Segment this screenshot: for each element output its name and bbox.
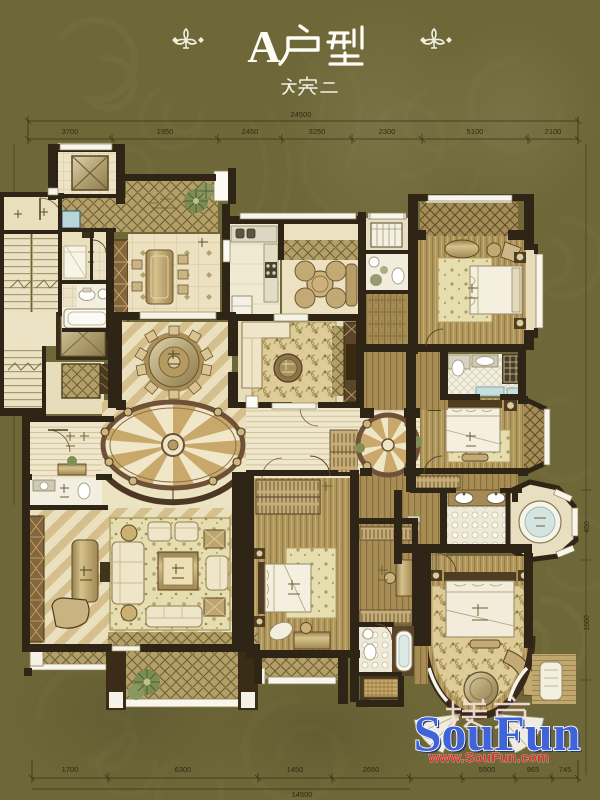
svg-text:965: 965	[527, 765, 540, 774]
svg-text:3250: 3250	[309, 127, 326, 136]
svg-text:A: A	[247, 21, 280, 72]
svg-text:2300: 2300	[379, 127, 396, 136]
svg-text:450: 450	[584, 521, 591, 533]
svg-text:2650: 2650	[363, 765, 380, 774]
svg-text:1450: 1450	[287, 765, 304, 774]
svg-text:24500: 24500	[291, 110, 312, 119]
svg-text:1950: 1950	[157, 127, 174, 136]
svg-text:www.SouFun.com: www.SouFun.com	[428, 749, 550, 765]
svg-text:14500: 14500	[292, 790, 313, 799]
svg-text:1500: 1500	[584, 615, 591, 631]
svg-text:2100: 2100	[545, 127, 562, 136]
svg-text:3700: 3700	[62, 127, 79, 136]
svg-text:6300: 6300	[175, 765, 192, 774]
svg-text:2450: 2450	[242, 127, 259, 136]
svg-text:5100: 5100	[467, 127, 484, 136]
svg-text:5500: 5500	[479, 765, 496, 774]
svg-text:1700: 1700	[62, 765, 79, 774]
svg-text:745: 745	[559, 765, 572, 774]
